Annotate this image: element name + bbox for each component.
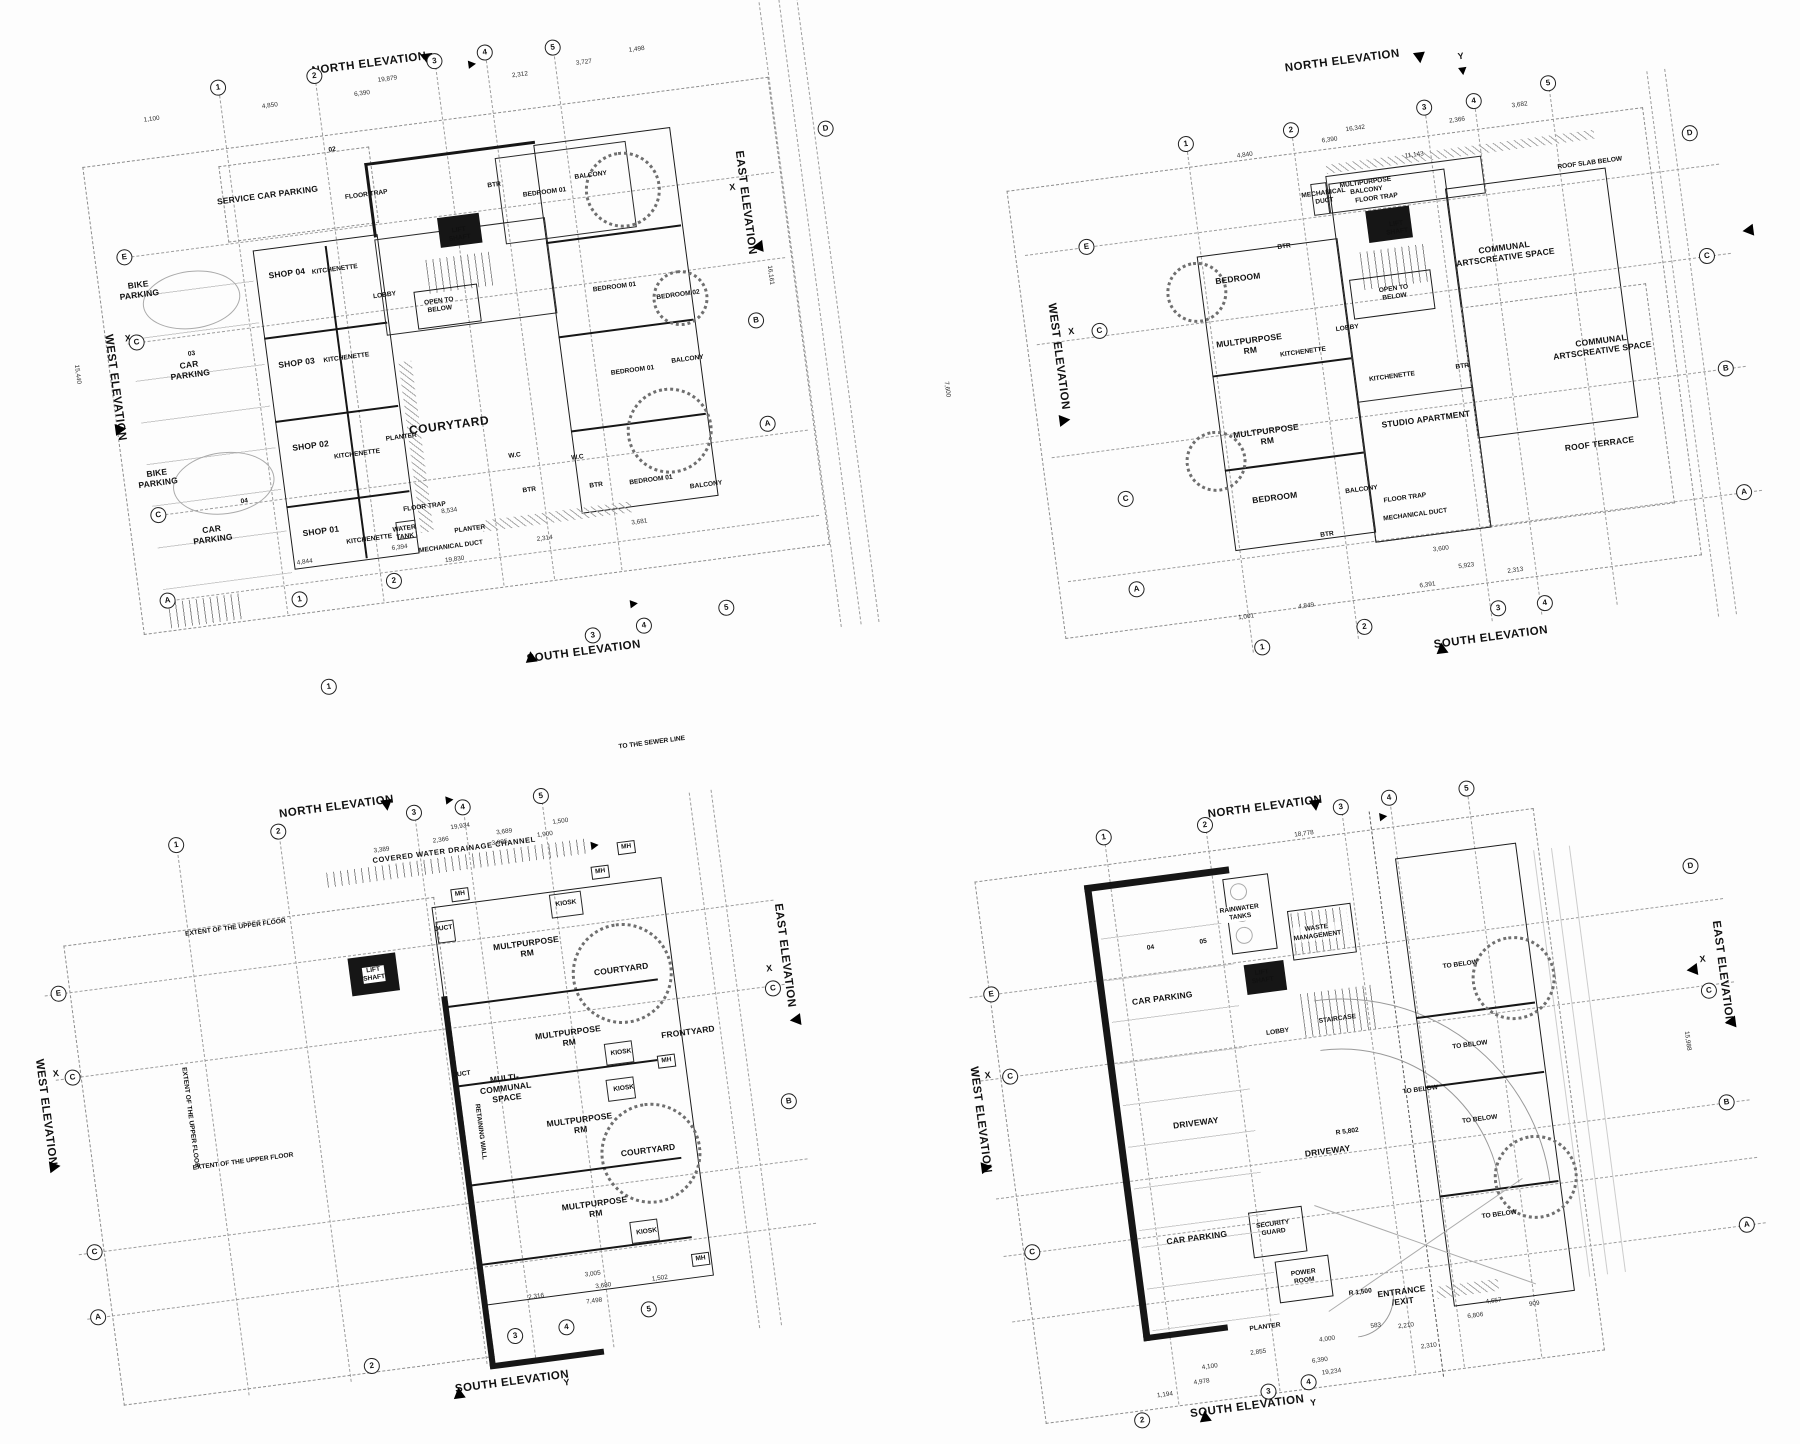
dimension-label: 2,366 [1449,116,1466,126]
grid-bubble: 4 [1536,594,1554,612]
grid-bubble: E [50,985,68,1003]
grid-bubble: 5 [532,787,550,805]
grid-bubble: 2 [269,823,287,841]
grid-bubble: C [1698,247,1716,265]
flag-arrow-icon [1458,67,1467,76]
section-marker: X [1699,953,1707,965]
manhole-label: MH [450,887,470,902]
grid-bubble: 3 [1332,798,1350,816]
elevation-label: WEST ELEVATION [966,1066,994,1174]
parking-stall-number: 05 [1199,938,1207,947]
section-marker: Y [1310,1397,1318,1409]
manhole-label: MH [657,1054,677,1069]
grid-bubble: A [89,1308,107,1326]
flow-arrow-icon [590,841,599,850]
dimension-label: 1,502 [651,1274,668,1284]
dimension-label: 19,879 [377,74,397,84]
section-marker: X [1068,326,1076,338]
room-label: TO THE SEWER LINE [618,735,685,752]
grid-bubble: D [1681,124,1699,142]
drawing-canvas: NORTH ELEVATION SOUTH ELEVATION WEST ELE… [0,0,1800,1444]
dimension-label: 15,988 [1682,1031,1692,1051]
dimension-label: 3,689 [496,827,513,837]
room-label: LIFT SHAFT [1385,219,1409,238]
section-marker: Y [563,1377,571,1389]
grid-bubble: 2 [1133,1411,1151,1429]
grid-bubble: D [1682,857,1700,875]
grid-bubble: C [86,1243,104,1261]
grid-bubble: 3 [506,1327,524,1345]
dimension-label: 1,498 [628,45,645,55]
grid-bubble: 4 [1465,92,1483,110]
elevation-label: NORTH ELEVATION [311,50,427,79]
elevation-label: NORTH ELEVATION [278,793,394,822]
extent-boundary [63,897,494,1406]
grid-bubble: 4 [635,617,653,635]
room-label: POWER ROOM [1290,1268,1317,1287]
room-label: LIFT SHAFT [1250,968,1274,987]
grid-bubble: 3 [1415,99,1433,117]
grid-bubble: 5 [1539,74,1557,92]
grid-bubble: 4 [454,798,472,816]
section-marker: X [52,1068,60,1080]
grid-bubble: 5 [717,599,735,617]
grid-bubble: 4 [557,1318,575,1336]
elevation-label: EAST ELEVATION [1708,920,1735,1026]
south-arrow-icon [452,1387,465,1399]
grid-bubble: 5 [544,39,562,57]
grid-bubble: 1 [1177,135,1195,153]
grid-bubble: 5 [1458,780,1476,798]
grid-bubble: 3 [425,52,443,70]
room-label: WATER TANK [392,524,417,543]
grid-bubble: B [1717,360,1735,378]
grid-bubble: 4 [1380,789,1398,807]
grid-bubble: 1 [167,836,185,854]
room-label: LIFT SHAFT [362,965,386,984]
retaining-wall [490,1349,605,1369]
parking-stall-number: 03 [188,350,196,359]
north-arrow-icon [1413,52,1426,64]
dimension-label: 909 [1529,1300,1541,1309]
west-arrow-icon [115,423,127,436]
room-label: LIFT SHAFT [447,225,471,244]
parking-stall-number: 04 [240,497,248,506]
parking-stall-number: 04 [1146,944,1154,953]
grid-bubble: B [1718,1093,1736,1111]
south-arrow-icon [1198,1410,1211,1422]
manhole-label: MH [591,865,611,880]
flag-arrow-icon [468,60,477,69]
flag-arrow-icon [445,795,454,804]
dimension-label: 4,850 [261,101,278,111]
grid-bubble: 1 [1095,828,1113,846]
dimension-label: 15,440 [72,364,82,384]
dimension-label: 2,316 [528,1292,545,1302]
manhole-label: MH [691,1252,711,1267]
road-line [711,790,782,1326]
dimension-label: 7,600 [942,381,952,398]
grid-bubble: D [817,120,835,138]
east-arrow-icon [1742,224,1754,237]
section-marker: X [984,1070,992,1082]
section-marker: X [729,182,737,194]
dimension-label: 2,312 [512,70,529,80]
parking-stall-number: 02 [328,146,336,155]
grid-bubble: A [1738,1216,1756,1234]
dimension-label: 16,342 [1345,124,1365,134]
west-arrow-icon [981,1161,993,1174]
east-arrow-icon [1724,1016,1736,1029]
flag-arrow-icon [630,599,639,608]
dimension-label: 1,001 [1238,612,1255,622]
section-marker: Y [1457,51,1465,63]
grid-bubble: 3 [405,804,423,822]
grid-bubble: 1 [1253,638,1271,656]
dimension-label: 6,390 [354,89,371,99]
dimension-label: 6,390 [1321,135,1338,145]
studio-outline [1357,387,1492,543]
grid-bubble: 5 [640,1300,658,1318]
flag-arrow-icon [1379,812,1388,821]
dimension-label: 3,727 [576,58,593,68]
dimension-label: 1,900 [537,830,554,840]
north-arrow-icon [1309,799,1322,811]
grid-bubble: A [1735,483,1753,501]
floor-plan-sheet-c: NORTH ELEVATION SOUTH ELEVATION WEST ELE… [0,621,866,1444]
west-arrow-icon [49,1160,61,1173]
floor-plan-sheet-a: NORTH ELEVATION SOUTH ELEVATION WEST ELE… [0,0,909,736]
dimension-label: 1,100 [143,115,160,125]
section-marker: X [766,963,774,975]
roof-terrace-boundary [1461,283,1675,528]
room-label: W.C [571,453,584,462]
grid-bubble: C [764,979,782,997]
east-arrow-icon [1686,963,1698,976]
north-arrow-icon [380,799,393,811]
floor-plan-sheet-d: NORTH ELEVATION SOUTH ELEVATION WEST ELE… [814,613,1800,1444]
dimension-label: 583 [1370,1322,1382,1331]
elevation-label: NORTH ELEVATION [1284,48,1400,77]
dimension-label: 19,934 [450,822,470,832]
east-arrow-icon [789,1013,801,1026]
dimension-label: 3,682 [1511,100,1528,110]
east-arrow-icon [751,240,763,253]
grid-bubble: B [780,1092,798,1110]
manhole-label: MH [617,840,637,855]
dimension-label: 1,500 [552,817,569,827]
dimension-label: 4,849 [1298,601,1315,611]
dimension-label: 2,366 [432,836,449,846]
west-arrow-icon [1059,414,1071,427]
grid-bubble: 3 [584,626,602,644]
grid-bubble: 1 [320,678,338,696]
dimension-label: 7,498 [586,1297,603,1307]
elevation-label: NORTH ELEVATION [1207,794,1323,823]
room-label: W.C [508,451,521,460]
grid-bubble: 4 [476,44,494,62]
dimension-label: 3,680 [595,1281,612,1291]
grid-bubble: 1 [209,79,227,97]
elevation-label: SOUTH ELEVATION [454,1368,570,1397]
grid-bubble: 2 [1282,121,1300,139]
